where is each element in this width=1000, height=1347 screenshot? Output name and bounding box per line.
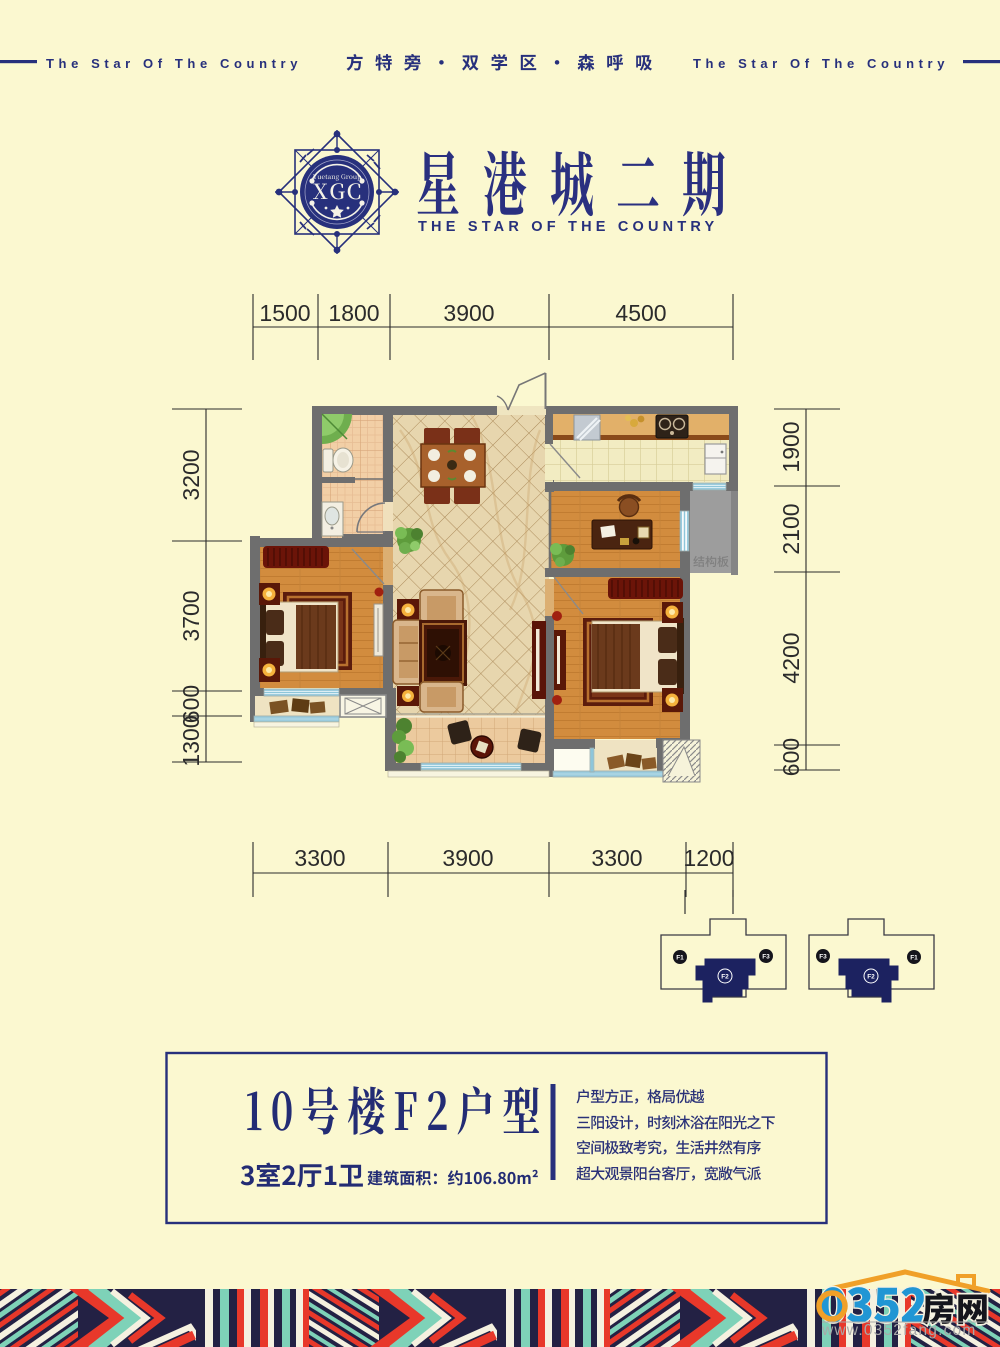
svg-text:1200: 1200 (683, 845, 734, 871)
svg-text:1500: 1500 (259, 300, 310, 326)
svg-text:3900: 3900 (442, 845, 493, 871)
svg-text:600: 600 (778, 738, 804, 776)
svg-text:3300: 3300 (294, 845, 345, 871)
svg-text:3300: 3300 (591, 845, 642, 871)
svg-text:The Star Of The Country: The Star Of The Country (46, 56, 302, 71)
svg-text:2100: 2100 (778, 503, 804, 554)
svg-text:4200: 4200 (778, 632, 804, 683)
svg-text:3700: 3700 (178, 590, 204, 641)
svg-text:F3: F3 (762, 954, 770, 961)
svg-text:3900: 3900 (443, 300, 494, 326)
svg-text:F1: F1 (910, 955, 918, 962)
svg-text:1300: 1300 (178, 715, 204, 766)
svg-text:The Star Of The Country: The Star Of The Country (693, 56, 949, 71)
svg-text:3200: 3200 (178, 449, 204, 500)
svg-text:F3: F3 (819, 954, 827, 961)
svg-text:www.0352fang.com: www.0352fang.com (821, 1322, 976, 1339)
svg-text:F2: F2 (721, 974, 729, 981)
svg-text:4500: 4500 (615, 300, 666, 326)
svg-text:F2: F2 (867, 974, 875, 981)
svg-text:1800: 1800 (328, 300, 379, 326)
svg-text:F1: F1 (676, 955, 684, 962)
svg-text:1900: 1900 (778, 421, 804, 472)
svg-text:THE STAR OF THE COUNTRY: THE STAR OF THE COUNTRY (418, 219, 718, 235)
